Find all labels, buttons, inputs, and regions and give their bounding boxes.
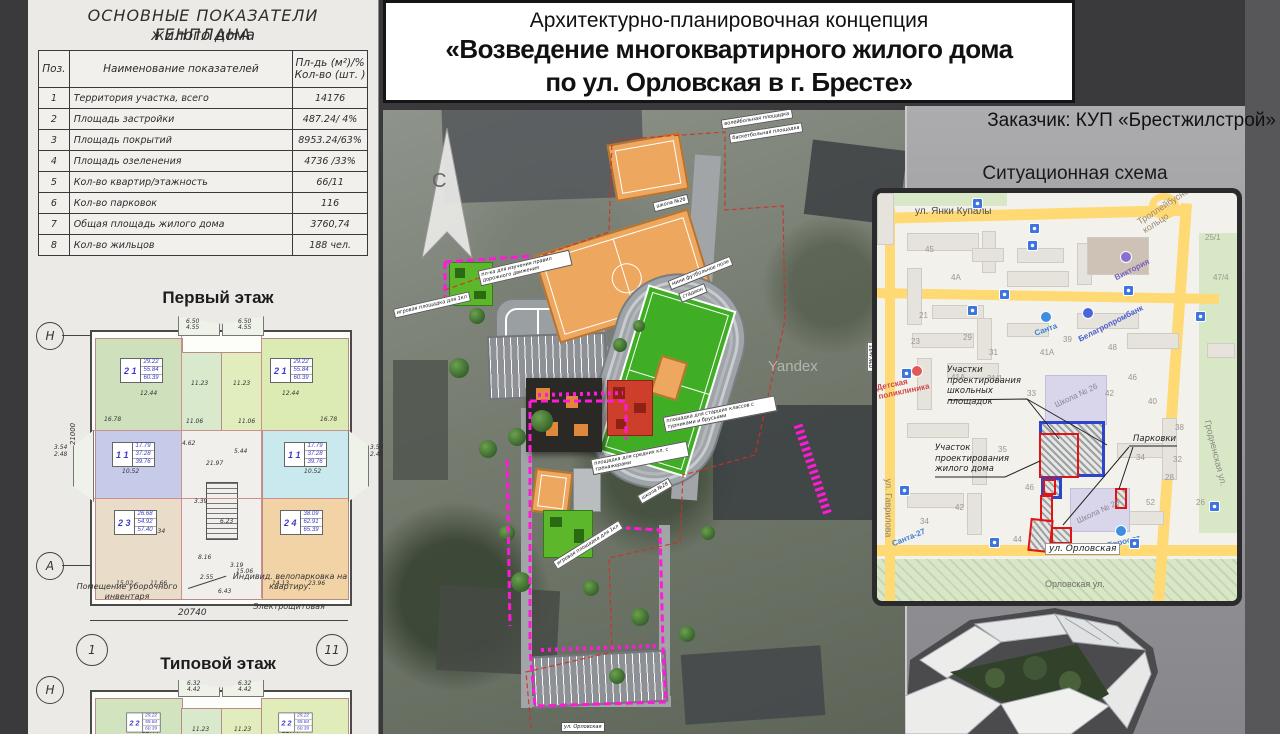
callout-school-zones: Участки проектирования школьных площадок: [947, 365, 1035, 407]
wall-line: [92, 498, 350, 499]
callout-house-zone: Участок проектирования жилого дома: [935, 443, 1015, 475]
vertical-dimension: 21000: [69, 423, 77, 445]
balcony-dim: 4.55: [238, 324, 251, 331]
situation-scheme-title: Ситуационная схема: [930, 163, 1220, 185]
bay-window: [348, 430, 369, 502]
annotation-electrical-room: Электрощитовая: [234, 602, 344, 612]
table-row: 3Площадь покрытий8953.24/63%: [39, 130, 368, 151]
dim: 12.44: [282, 390, 299, 397]
site-plan: С школа №26 волейбольная площадка баскет…: [383, 110, 905, 734]
map-watermark: Yandex: [768, 358, 818, 375]
balcony-dim: 4.55: [186, 324, 199, 331]
dim: 11.23: [192, 726, 209, 733]
first-floor-plan: 6.50 4.55 6.50 4.55 3.54 2.48 3.54 2.48: [90, 330, 352, 606]
balcony-dim: 4.42: [238, 686, 251, 693]
first-floor-heading: Первый этаж: [88, 288, 348, 308]
dim: 6.23: [220, 518, 233, 525]
table-row: 2Площадь застройки487.24/ 4%: [39, 109, 368, 130]
dim: 5.44: [234, 448, 247, 455]
wall-line: [92, 430, 350, 431]
typical-floor-plan: 6.32 4.42 6.32 4.42 2 229.2255.8460.39 2…: [90, 690, 352, 734]
dim: 11.06: [186, 418, 203, 425]
axis-marker-11: 11: [316, 634, 348, 666]
apartment-stamp: 2 129.2255.8460.39: [270, 358, 313, 383]
apartment-stamp: 2 438.0962.9165.39: [280, 510, 323, 535]
title-block: Архитектурно-планировочная концепция «Во…: [383, 0, 1075, 103]
side-dim: 3.54: [370, 444, 383, 451]
typical-floor-heading: Типовой этаж: [88, 654, 348, 674]
apartment-stamp: 2 229.2255.8460.39: [278, 713, 312, 733]
wall-line: [261, 332, 262, 598]
situation-map: Участки проектирования школьных площадок…: [872, 188, 1242, 606]
north-arrow: [418, 128, 476, 273]
street-orlovskaya-box: ул. Орловская: [1045, 543, 1120, 555]
dim: 11.23: [191, 380, 208, 387]
dim: 11.06: [238, 418, 255, 425]
annotation-cleaning-room: Помещение уборочного инвентаря: [62, 582, 192, 602]
title-line3: по ул. Орловская в г. Бресте»: [386, 66, 1072, 99]
apartment-stamp: 1 117.7937.2839.76: [112, 442, 155, 467]
balcony-dim: 4.42: [187, 686, 200, 693]
table-header-row: Поз. Наименование показателей Пл-дь (м²)…: [39, 51, 368, 88]
indicators-subtitle: жилого дома: [46, 26, 360, 44]
table-row: 5Кол-во квартир/этажность66/11: [39, 172, 368, 193]
table-row: 7Общая площадь жилого дома3760,74: [39, 214, 368, 235]
callout-parking: Парковки: [1133, 434, 1176, 445]
staircase: [206, 482, 238, 540]
bottom-dimension: 20740: [178, 608, 207, 618]
axis-leader: [62, 565, 92, 566]
title-line1: Архитектурно-планировочная концепция: [386, 9, 1072, 33]
map-canvas: Участки проектирования школьных площадок…: [877, 193, 1237, 601]
side-dim: 3.54: [54, 444, 67, 451]
dim: 16.78: [320, 416, 337, 423]
dim: 21.97: [206, 460, 223, 467]
col-name: Наименование показателей: [69, 51, 292, 88]
apartment-stamp: 2 326.6854.9257.40: [114, 510, 157, 535]
table-row: 4Площадь озеленения4736 /33%: [39, 151, 368, 172]
site-label-orlovskaya: ул. Орловская: [561, 722, 605, 732]
dimension-line: [90, 620, 348, 621]
dim: 8.16: [198, 554, 211, 561]
col-value: Пл-дь (м²)/% Кол-во (шт. ): [293, 51, 368, 88]
dim: 3.39: [194, 498, 207, 505]
dim: 4.62: [182, 440, 195, 447]
indicators-table: Поз. Наименование показателей Пл-дь (м²)…: [38, 50, 368, 256]
apartment-stamp: 2 129.2255.8460.39: [120, 358, 163, 383]
map-leaders: [877, 193, 1237, 601]
apartment-stamp: 2 229.2255.8460.39: [126, 713, 160, 733]
dim: 12.44: [140, 390, 157, 397]
north-label: С: [432, 170, 446, 193]
axis-marker-n: Н: [36, 322, 64, 350]
title-line2: «Возведение многоквартирного жилого дома: [386, 33, 1072, 66]
col-pos: Поз.: [39, 51, 70, 88]
axis-marker-a: А: [36, 552, 64, 580]
axis-marker-1: 1: [76, 634, 108, 666]
dim: 11.23: [233, 380, 250, 387]
dim: 16.78: [104, 416, 121, 423]
dim: 3.19: [230, 562, 243, 569]
dim: 11.23: [234, 726, 251, 733]
side-dim: 2.48: [370, 451, 383, 458]
table-row: 8Кол-во жильцов188 чел.: [39, 235, 368, 256]
side-dim: 2.48: [54, 451, 67, 458]
annotation-bike-parking: Индивид. велопарковка на квартиру.: [224, 572, 356, 592]
axis-leader: [62, 335, 92, 336]
apartment-stamp: 1 117.7937.2839.76: [284, 442, 327, 467]
wall-line: [181, 332, 182, 598]
dim: 10.52: [304, 468, 321, 475]
indicators-panel: ОСНОВНЫЕ ПОКАЗАТЕЛИ ГЕНПЛАНА жилого дома…: [28, 0, 379, 734]
table-row: 6Кол-во парковок116: [39, 193, 368, 214]
table-row: 1Территория участка, всего14176: [39, 88, 368, 109]
dim: 10.52: [122, 468, 139, 475]
axis-marker-n2: Н: [36, 676, 64, 704]
client-line: Заказчик: КУП «Брестжилстрой»: [908, 110, 1276, 132]
presentation-board: ОСНОВНЫЕ ПОКАЗАТЕЛИ ГЕНПЛАНА жилого дома…: [0, 0, 1280, 734]
